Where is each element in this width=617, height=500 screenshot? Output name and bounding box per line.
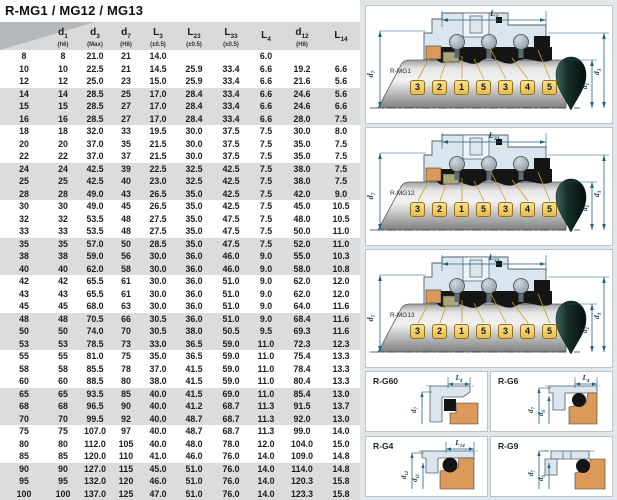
row-label: 53 — [0, 338, 48, 351]
table-cell: 25 — [112, 88, 140, 101]
table-cell: 50 — [112, 238, 140, 251]
table-cell: 58 — [48, 363, 78, 376]
table-cell: 12.0 — [322, 275, 360, 288]
table-cell: 21 — [112, 63, 140, 76]
table-cell: 52.0 — [282, 238, 322, 251]
table-cell: 59.0 — [78, 250, 112, 263]
table-cell: 17.0 — [140, 100, 176, 113]
table-cell: 14.5 — [140, 63, 176, 76]
table-cell: 78 — [112, 363, 140, 376]
table-cell: 80 — [48, 438, 78, 451]
table-cell: 68.7 — [212, 425, 250, 438]
table-cell: 65 — [48, 388, 78, 401]
table-cell: 25 — [48, 175, 78, 188]
table-cell: 35.0 — [176, 225, 212, 238]
table-cell: 33.4 — [212, 88, 250, 101]
table-cell: 93.5 — [78, 388, 112, 401]
table-cell: 30.0 — [140, 300, 176, 313]
table-cell: 11.3 — [250, 400, 282, 413]
table-cell: 36.0 — [176, 263, 212, 276]
col-header-L23: L23(±0.5) — [176, 22, 212, 50]
table-cell: 114.0 — [282, 463, 322, 476]
table-cell: 40.0 — [140, 388, 176, 401]
table-cell: 123.3 — [282, 488, 322, 500]
callout-chip: 5 — [476, 202, 491, 217]
table-cell: 42.5 — [78, 163, 112, 176]
table-cell: 37.0 — [140, 363, 176, 376]
table-cell: 36.0 — [176, 288, 212, 301]
table-cell: 132.0 — [78, 475, 112, 488]
table-row: 404062.05830.036.046.09.058.010.8 — [0, 263, 360, 276]
left-dimension-label-2: d11 — [411, 474, 421, 482]
table-cell: 51.0 — [176, 488, 212, 500]
table-row: 383859.05630.036.046.09.055.010.3 — [0, 250, 360, 263]
seal-model-label: R-MG12 — [390, 190, 415, 197]
table-cell: 43 — [112, 188, 140, 201]
callout-chip: 1 — [454, 202, 469, 217]
dimension-table-section: R-MG1 / MG12 / MG13 d1(h6) d3(Max) d7(H8… — [0, 0, 362, 500]
row-label: 43 — [0, 288, 48, 301]
table-cell: 49.0 — [78, 188, 112, 201]
table-cell: 76.0 — [212, 463, 250, 476]
table-cell: 11.3 — [250, 425, 282, 438]
table-cell: 21.6 — [282, 75, 322, 88]
table-cell: 63 — [112, 300, 140, 313]
detail-panel-label: R-G60 — [373, 376, 398, 386]
table-cell: 48.0 — [176, 438, 212, 451]
table-cell: 24 — [48, 163, 78, 176]
seat-black — [534, 280, 550, 298]
callout-chip: 1 — [454, 80, 469, 95]
callout-chip: 3 — [498, 80, 513, 95]
table-cell: 15.0 — [322, 438, 360, 451]
row-label: 95 — [0, 475, 48, 488]
table-cell: 35.0 — [282, 150, 322, 163]
table-cell: 92 — [112, 413, 140, 426]
table-cell: 40 — [48, 263, 78, 276]
table-row: 656593.58540.041.569.011.085.413.0 — [0, 388, 360, 401]
table-row: 8821.02114.06.0 — [0, 50, 360, 63]
row-label: 65 — [0, 388, 48, 401]
table-cell: 48 — [48, 313, 78, 326]
table-cell: 115 — [112, 463, 140, 476]
table-cell: 41.5 — [176, 388, 212, 401]
left-dimension-label: d7 — [410, 406, 420, 413]
row-label: 12 — [0, 75, 48, 88]
seal-diagram-panel: L23 d7 d1 d3 R-MG12 3215345 — [365, 127, 613, 246]
table-cell: 27 — [112, 113, 140, 126]
left-dimension-label-2: d6 — [537, 474, 547, 481]
table-cell: 92.0 — [282, 413, 322, 426]
table-cell: 42.5 — [212, 175, 250, 188]
table-cell: 11.0 — [250, 388, 282, 401]
table-cell: 36.0 — [176, 313, 212, 326]
table-cell: 53 — [48, 338, 78, 351]
row-label: 8 — [0, 50, 48, 63]
row-label: 70 — [0, 413, 48, 426]
table-cell: 90 — [112, 400, 140, 413]
table-cell: 45 — [48, 300, 78, 313]
table-cell: 38.0 — [282, 163, 322, 176]
detail-panel-rg4: R-G4 — [365, 436, 488, 497]
table-cell: 85.4 — [282, 388, 322, 401]
right-dimension-label-d3: d3 — [592, 68, 603, 75]
top-dimension-label: L4 — [581, 373, 590, 384]
table-row: 252542.54023.032.542.57.538.07.5 — [0, 175, 360, 188]
table-cell: 7.5 — [250, 125, 282, 138]
table-cell: 25.9 — [176, 75, 212, 88]
seal-cross-section-drawing: L33 d7 d1 d3 R-MG13 — [366, 250, 612, 367]
table-cell: 137.0 — [78, 488, 112, 500]
table-cell: 69.0 — [212, 388, 250, 401]
table-cell: 7.5 — [322, 150, 360, 163]
table-cell: 85 — [112, 388, 140, 401]
table-cell: 28.5 — [140, 238, 176, 251]
row-label: 20 — [0, 138, 48, 151]
callout-chip: 3 — [498, 324, 513, 339]
table-row: 323253.54827.535.047.57.548.010.5 — [0, 213, 360, 226]
table-cell: 14.8 — [322, 450, 360, 463]
table-cell: 91.5 — [282, 400, 322, 413]
table-cell: 13.7 — [322, 400, 360, 413]
table-cell: 13.0 — [322, 413, 360, 426]
table-cell: 41.0 — [140, 450, 176, 463]
table-cell: 7.5 — [322, 138, 360, 151]
table-cell: 30.5 — [140, 313, 176, 326]
table-cell: 27.5 — [140, 225, 176, 238]
table-row: 141428.52517.028.433.46.624.65.6 — [0, 88, 360, 101]
left-dimension-label-1: d7 — [527, 406, 537, 413]
top-dimension-label: L14 — [454, 438, 465, 449]
table-cell — [176, 50, 212, 63]
row-label: 45 — [0, 300, 48, 313]
table-cell: 40.0 — [140, 438, 176, 451]
seal-cross-section-drawing: L23 d7 d1 d3 R-MG12 — [366, 128, 612, 245]
table-cell: 9.0 — [250, 300, 282, 313]
col-header-d3: d3(Max) — [78, 22, 112, 50]
table-cell: 6.6 — [322, 63, 360, 76]
table-cell: 15.8 — [322, 488, 360, 500]
table-cell: 28 — [48, 188, 78, 201]
table-cell — [212, 50, 250, 63]
table-cell: 81.0 — [78, 350, 112, 363]
table-cell: 42.5 — [212, 188, 250, 201]
table-cell: 20 — [48, 138, 78, 151]
table-row: 424265.56130.036.051.09.062.012.0 — [0, 275, 360, 288]
table-cell: 21.5 — [140, 150, 176, 163]
table-cell: 28.5 — [78, 100, 112, 113]
row-label: 24 — [0, 163, 48, 176]
table-cell: 35 — [112, 138, 140, 151]
table-cell: 85.5 — [78, 363, 112, 376]
table-row: 282849.04326.535.042.57.542.09.0 — [0, 188, 360, 201]
table-cell: 37.0 — [78, 138, 112, 151]
row-label: 16 — [0, 113, 48, 126]
table-cell: 7.5 — [322, 163, 360, 176]
table-cell: 62.0 — [282, 288, 322, 301]
table-cell: 32.5 — [176, 163, 212, 176]
table-row: 242442.53922.532.542.57.538.07.5 — [0, 163, 360, 176]
table-cell: 7.5 — [250, 213, 282, 226]
table-cell: 13.3 — [322, 363, 360, 376]
table-cell: 30.0 — [140, 275, 176, 288]
o-ring — [443, 458, 458, 473]
table-cell: 39 — [112, 163, 140, 176]
table-cell: 48 — [112, 213, 140, 226]
callout-chips: 3215345 — [410, 80, 557, 95]
table-row: 8080112.010540.048.078.012.0104.015.0 — [0, 438, 360, 451]
table-cell: 46.0 — [140, 475, 176, 488]
detail-panel-rg60: R-G60 L4 — [365, 371, 488, 432]
table-row: 484870.56630.536.051.09.068.411.6 — [0, 313, 360, 326]
table-cell: 7.5 — [250, 238, 282, 251]
top-dimension-label: L4 — [454, 373, 463, 384]
row-label: 58 — [0, 363, 48, 376]
page-title: R-MG1 / MG12 / MG13 — [5, 3, 143, 18]
gland-top-bar — [551, 451, 589, 459]
table-row: 222237.03721.530.037.57.535.07.5 — [0, 150, 360, 163]
table-cell: 41.2 — [176, 400, 212, 413]
table-cell: 51.0 — [176, 475, 212, 488]
dimension-table: d1(h6) d3(Max) d7(H8) L3(±0.5) L23(±0.5)… — [0, 22, 360, 500]
table-cell: 35.0 — [176, 213, 212, 226]
row-label: 42 — [0, 275, 48, 288]
table-cell: 59.0 — [212, 375, 250, 388]
table-cell: 78.5 — [78, 338, 112, 351]
table-cell: 9.0 — [250, 275, 282, 288]
seal-model-label: R-MG13 — [390, 312, 415, 319]
table-cell: 46.0 — [176, 450, 212, 463]
seal-diagram-panel: L3 d7 d1 d3 R-MG1 3215345 — [365, 5, 613, 124]
table-cell: 14 — [48, 88, 78, 101]
table-cell: 12 — [48, 75, 78, 88]
table-cell: 45 — [112, 200, 140, 213]
table-row: 686896.59040.041.268.711.391.513.7 — [0, 400, 360, 413]
table-cell: 7.5 — [322, 175, 360, 188]
table-cell: 109.0 — [282, 450, 322, 463]
table-cell: 57.0 — [78, 238, 112, 251]
table-cell: 11.6 — [322, 325, 360, 338]
table-cell: 33.0 — [140, 338, 176, 351]
table-cell: 28.4 — [176, 100, 212, 113]
table-cell: 6.6 — [322, 100, 360, 113]
table-cell: 51.0 — [176, 463, 212, 476]
corner-header-cell — [0, 22, 48, 50]
row-label: 35 — [0, 238, 48, 251]
table-cell: 24.6 — [282, 100, 322, 113]
col-header-L4: L4 — [250, 22, 282, 50]
table-cell: 6.6 — [250, 113, 282, 126]
row-label: 25 — [0, 175, 48, 188]
col-header-L3: L3(±0.5) — [140, 22, 176, 50]
table-cell: 35 — [48, 238, 78, 251]
callout-chip: 3 — [498, 202, 513, 217]
table-cell: 13.0 — [322, 388, 360, 401]
callout-chip: 4 — [520, 202, 535, 217]
right-dimension-label-d3: d3 — [592, 312, 603, 319]
table-cell: 15 — [48, 100, 78, 113]
left-dimension-label-2: d6 — [537, 409, 547, 416]
table-row: 151528.52717.028.433.46.624.66.6 — [0, 100, 360, 113]
row-label: 40 — [0, 263, 48, 276]
table-cell: 25.0 — [78, 75, 112, 88]
table-cell: 30.0 — [176, 150, 212, 163]
table-cell: 10.5 — [322, 200, 360, 213]
table-row: 333353.54827.535.047.57.550.011.0 — [0, 225, 360, 238]
table-cell: 68.0 — [78, 300, 112, 313]
right-dimension-label-d3: d3 — [592, 190, 603, 197]
table-cell: 6.6 — [250, 63, 282, 76]
table-cell: 30.0 — [176, 125, 212, 138]
table-cell: 38.0 — [140, 375, 176, 388]
table-cell: 6.0 — [250, 50, 282, 63]
row-label: 80 — [0, 438, 48, 451]
table-cell: 78.4 — [282, 363, 322, 376]
seat-face-orange — [426, 290, 441, 303]
table-cell: 37.5 — [212, 138, 250, 151]
table-cell: 35.0 — [140, 350, 176, 363]
table-cell: 17.0 — [140, 113, 176, 126]
table-cell: 10.5 — [322, 213, 360, 226]
table-cell: 76.0 — [212, 475, 250, 488]
table-cell: 100 — [48, 488, 78, 500]
table-cell: 22 — [48, 150, 78, 163]
table-cell: 61 — [112, 288, 140, 301]
table-cell: 37.5 — [212, 150, 250, 163]
table-cell: 70 — [112, 325, 140, 338]
table-cell: 33.4 — [212, 75, 250, 88]
table-row: 9595132.012046.051.076.014.0120.315.8 — [0, 475, 360, 488]
table-cell: 125 — [112, 488, 140, 500]
table-cell: 65.5 — [78, 288, 112, 301]
row-label: 14 — [0, 88, 48, 101]
row-label: 60 — [0, 375, 48, 388]
table-cell: 40 — [112, 175, 140, 188]
table-cell: 55 — [48, 350, 78, 363]
row-label: 15 — [0, 100, 48, 113]
table-cell: 59.0 — [212, 363, 250, 376]
table-cell: 38.0 — [176, 325, 212, 338]
table-cell: 32 — [48, 213, 78, 226]
table-cell: 33 — [48, 225, 78, 238]
seat-face-orange — [426, 168, 441, 181]
table-row: 9090127.011545.051.076.014.0114.014.8 — [0, 463, 360, 476]
left-dimension-label: d7 — [366, 192, 377, 199]
table-row: 454568.06330.036.051.09.064.011.6 — [0, 300, 360, 313]
table-cell: 11.0 — [322, 238, 360, 251]
diagrams-section: L3 d7 d1 d3 R-MG1 3215345 — [360, 0, 617, 500]
row-label: 33 — [0, 225, 48, 238]
table-cell: 80 — [112, 375, 140, 388]
table-cell: 96.5 — [78, 400, 112, 413]
table-cell — [282, 50, 322, 63]
callout-chip: 4 — [520, 80, 535, 95]
o-ring — [576, 459, 590, 473]
table-cell: 30.0 — [140, 263, 176, 276]
detail-panel-label: R-G9 — [498, 441, 518, 451]
table-cell: 48 — [112, 225, 140, 238]
table-row: 555581.07535.036.559.011.075.413.3 — [0, 350, 360, 363]
seal-square — [444, 399, 456, 411]
row-label: 48 — [0, 313, 48, 326]
table-cell: 62.0 — [282, 275, 322, 288]
table-cell: 10.8 — [322, 263, 360, 276]
table-cell: 120.3 — [282, 475, 322, 488]
table-cell: 12.3 — [322, 338, 360, 351]
table-cell: 35.0 — [176, 188, 212, 201]
table-cell: 36.0 — [176, 300, 212, 313]
drive-collar — [470, 260, 482, 277]
table-cell: 59.0 — [212, 338, 250, 351]
table-cell: 21.0 — [78, 50, 112, 63]
table-cell: 15.8 — [322, 475, 360, 488]
table-cell: 41.5 — [176, 375, 212, 388]
row-label: 28 — [0, 188, 48, 201]
table-cell: 10.3 — [322, 250, 360, 263]
table-cell: 6.6 — [250, 100, 282, 113]
table-cell: 30 — [48, 200, 78, 213]
table-cell: 24.6 — [282, 88, 322, 101]
table-row: 101022.52114.525.933.46.619.26.6 — [0, 63, 360, 76]
table-cell: 51.0 — [212, 275, 250, 288]
table-cell: 17.0 — [140, 88, 176, 101]
table-cell: 26.5 — [140, 200, 176, 213]
table-cell: 49.0 — [78, 200, 112, 213]
col-header-d12: d12(H8) — [282, 22, 322, 50]
detail-panel-rg9: R-G9 d7 — [490, 436, 613, 497]
table-cell: 30.5 — [140, 325, 176, 338]
table-cell: 36.5 — [176, 350, 212, 363]
table-cell: 75.4 — [282, 350, 322, 363]
table-cell: 78.0 — [212, 438, 250, 451]
seal-diagram-panel: L33 d7 d1 d3 R-MG13 3215345 — [365, 249, 613, 368]
table-cell: 104.0 — [282, 438, 322, 451]
table-cell: 6.6 — [250, 75, 282, 88]
row-label: 68 — [0, 400, 48, 413]
col-header-L14: L14 — [322, 22, 360, 50]
table-cell: 68.7 — [212, 413, 250, 426]
col-header-d1: d1(h6) — [48, 22, 78, 50]
seal-cross-section-drawing: L3 d7 d1 d3 R-MG1 — [366, 6, 612, 123]
table-cell: 66 — [112, 313, 140, 326]
row-label: 55 — [0, 350, 48, 363]
table-cell: 9.5 — [250, 325, 282, 338]
table-cell: 43 — [48, 288, 78, 301]
table-cell: 58 — [112, 263, 140, 276]
table-cell: 37.0 — [78, 150, 112, 163]
table-cell: 107.0 — [78, 425, 112, 438]
seat-black — [534, 158, 550, 176]
big-panels: L3 d7 d1 d3 R-MG1 3215345 — [365, 5, 613, 371]
table-cell: 56 — [112, 250, 140, 263]
table-cell: 75 — [112, 350, 140, 363]
table-cell: 45.0 — [282, 200, 322, 213]
table-cell: 9.0 — [250, 250, 282, 263]
table-cell: 16 — [48, 113, 78, 126]
table-cell: 88.5 — [78, 375, 112, 388]
table-cell: 120.0 — [78, 450, 112, 463]
table-cell: 13.3 — [322, 375, 360, 388]
table-cell: 33 — [112, 125, 140, 138]
table-cell: 53.5 — [78, 225, 112, 238]
table-cell: 37 — [112, 150, 140, 163]
table-cell: 11.0 — [250, 375, 282, 388]
callout-chip: 4 — [520, 324, 535, 339]
row-label: 22 — [0, 150, 48, 163]
table-cell: 7.5 — [250, 200, 282, 213]
table-cell: 48.7 — [176, 425, 212, 438]
row-label: 18 — [0, 125, 48, 138]
